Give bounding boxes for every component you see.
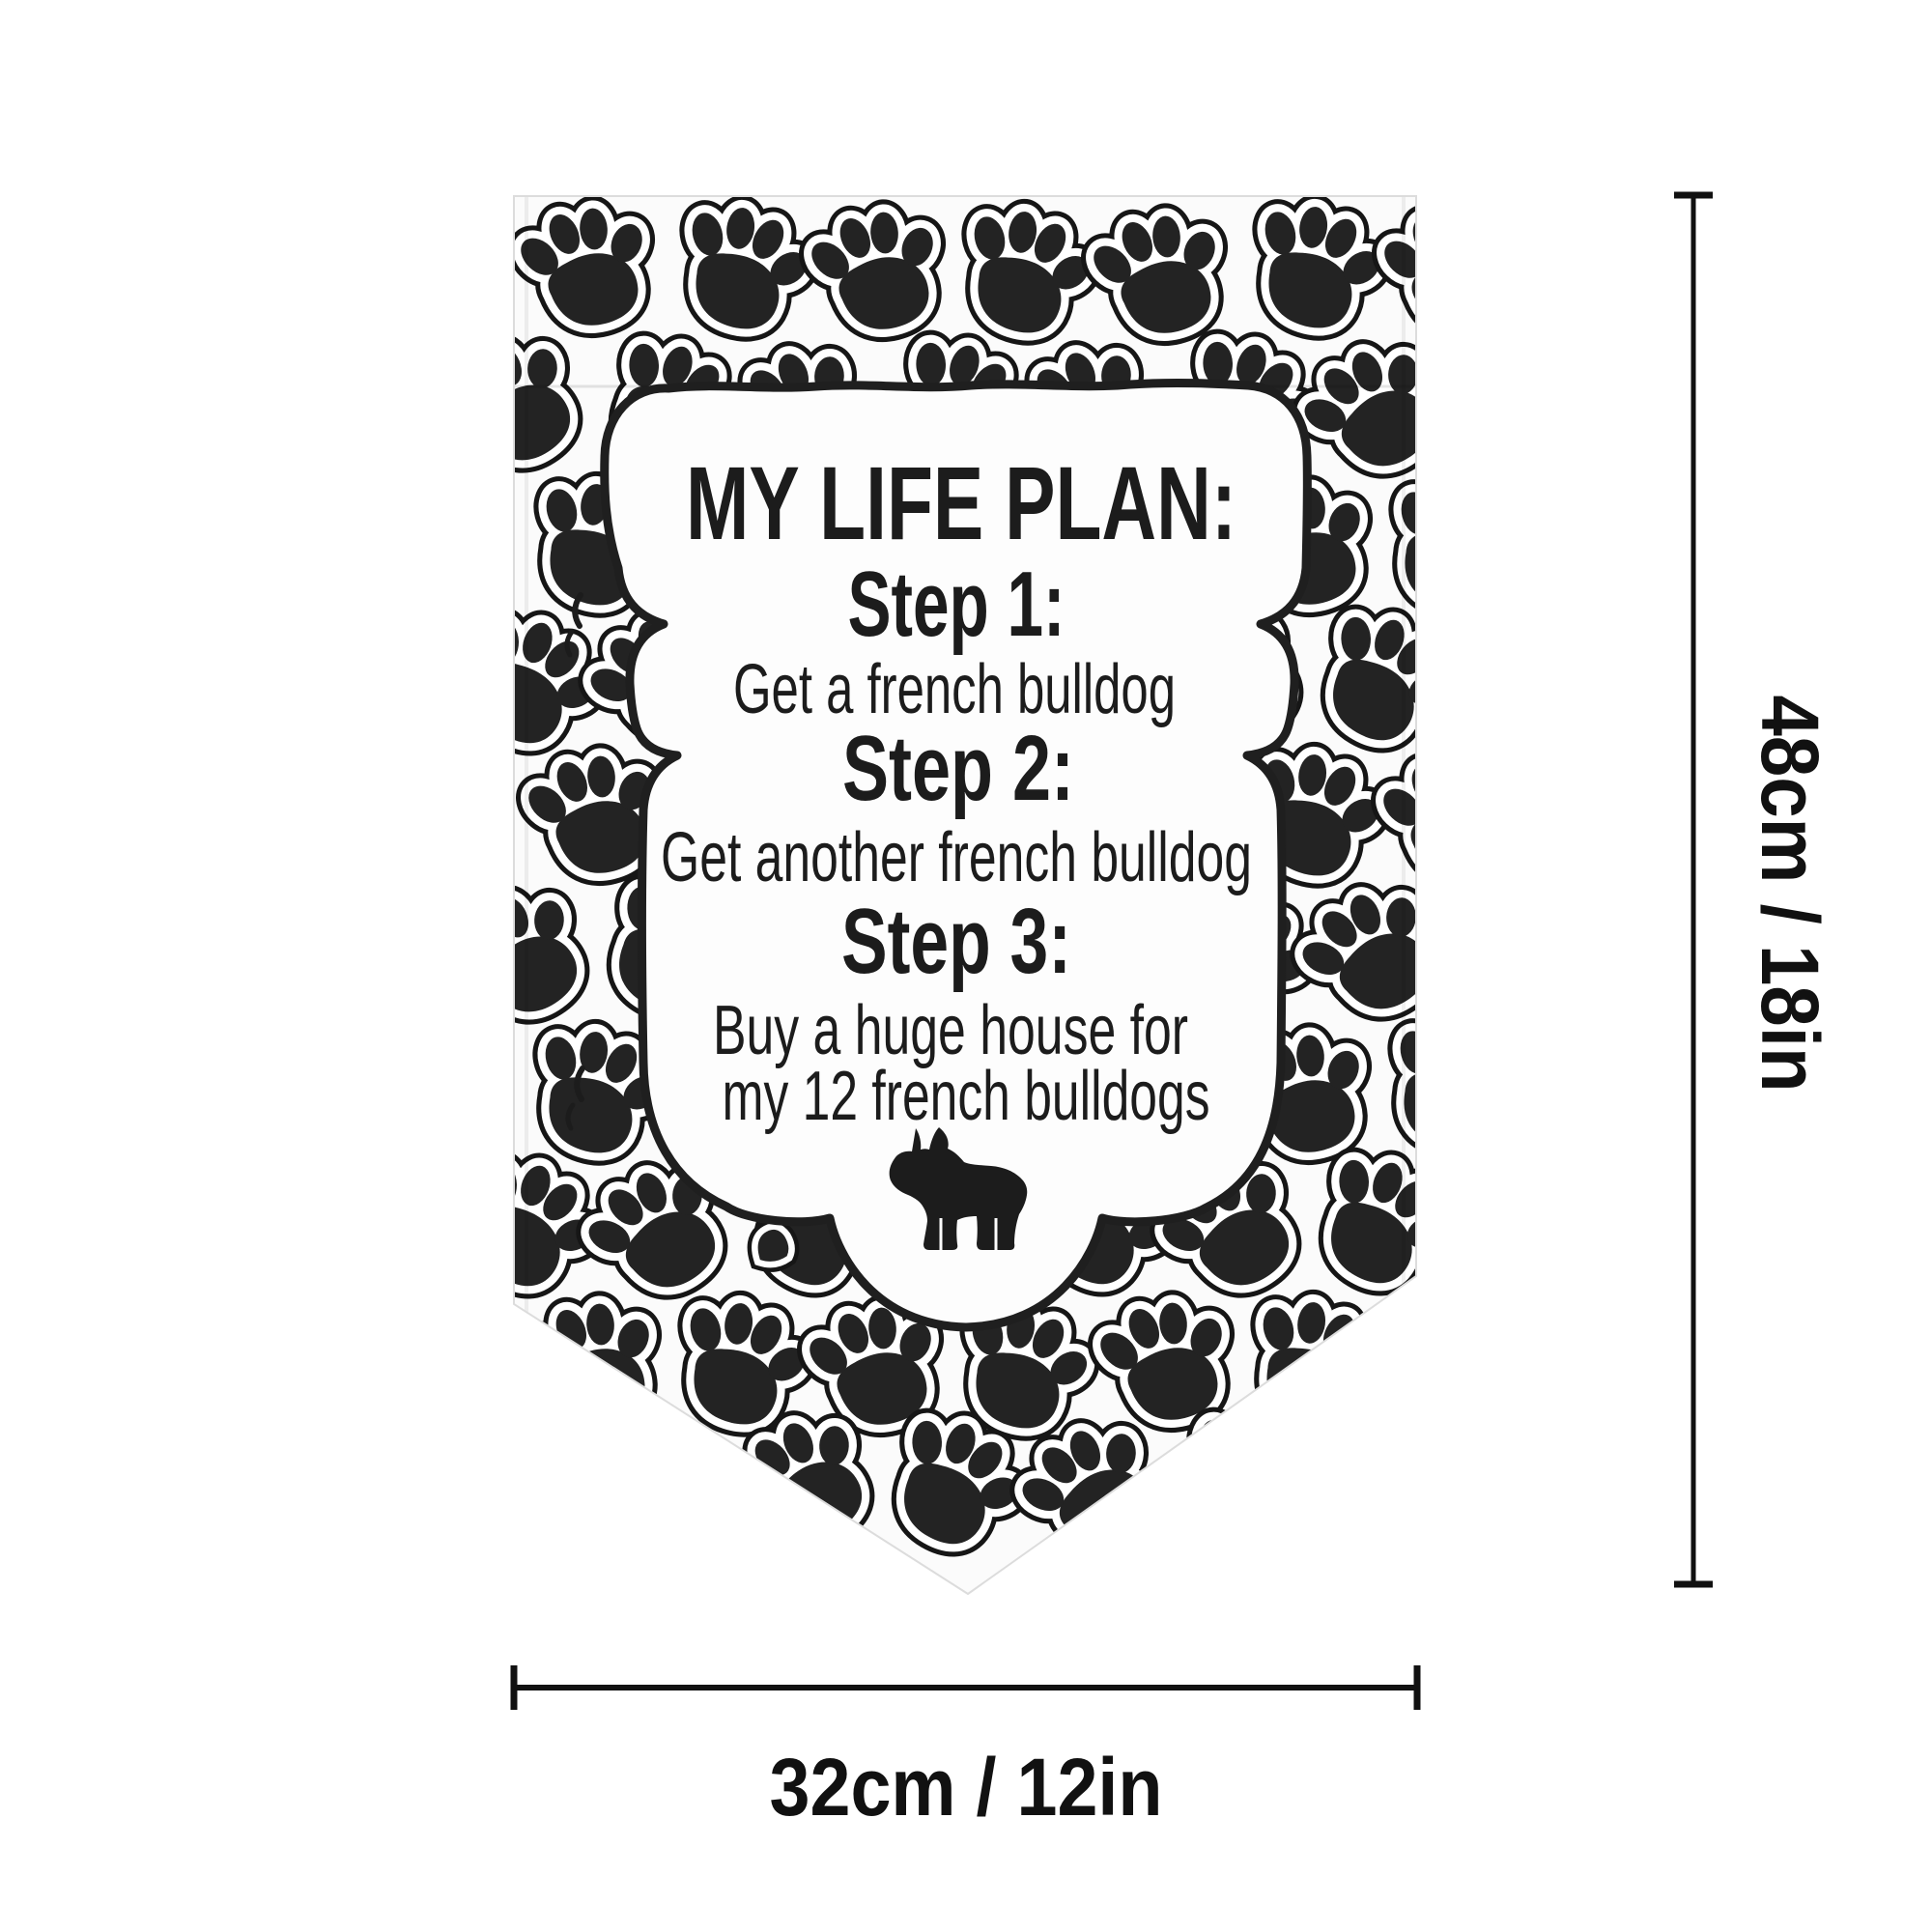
svg-text:Step 1:: Step 1: [848, 553, 1065, 656]
svg-text:my 12 french bulldogs: my 12 french bulldogs [723, 1058, 1210, 1135]
svg-text:MY LIFE PLAN:: MY LIFE PLAN: [686, 444, 1236, 561]
svg-text:Step 2:: Step 2: [842, 717, 1074, 820]
svg-text:32cm / 12in: 32cm / 12in [770, 1742, 1163, 1833]
svg-text:Get another french bulldog: Get another french bulldog [661, 819, 1252, 896]
svg-text:Step 3:: Step 3: [841, 890, 1071, 993]
svg-text:48cm / 18in: 48cm / 18in [1745, 696, 1835, 1093]
